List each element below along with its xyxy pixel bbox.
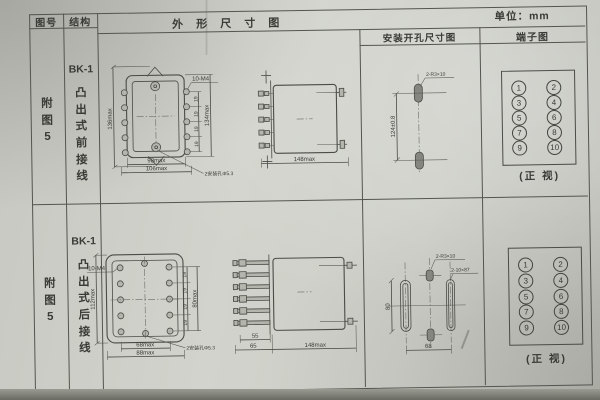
row1-terminal-diagram: 1 3 5 7 9 2 4 6 8 10 xyxy=(501,70,576,166)
terminal-4: 4 xyxy=(546,95,561,110)
svg-text:19: 19 xyxy=(183,304,189,310)
row2-dim-height-right: 80max xyxy=(192,267,199,331)
row1-dim-pitch: 19 19 19 19 xyxy=(189,92,202,152)
row2-install-hole-drawing: 80 68 2-R3×10 2-10×87 xyxy=(383,247,490,361)
row2-dim-68: 68 xyxy=(425,344,432,350)
row1-dim-slot: 2-R3×10 xyxy=(426,72,446,78)
row1-dim-148max: 148max xyxy=(294,157,315,163)
row2-dim-widths: 68max 88max xyxy=(107,341,184,360)
terminal-7: 7 xyxy=(519,305,534,320)
row2-dim-10-M4: 10-M4 xyxy=(88,266,106,272)
row1-dim-124: 124±0.8 xyxy=(391,115,397,137)
row2-dim-mount-hole: 2安装孔Φ5.3 xyxy=(186,344,215,351)
row2-dim-88max: 88max xyxy=(136,350,154,356)
row2-terminal-left-column: 1 3 5 7 9 xyxy=(518,257,534,335)
terminal-6: 6 xyxy=(553,288,568,303)
col-header-fig-no: 图号 xyxy=(29,14,63,30)
terminal-9: 9 xyxy=(519,320,534,335)
photo-bottom-shadow xyxy=(0,389,600,400)
svg-text:19: 19 xyxy=(194,126,200,132)
terminal-10: 10 xyxy=(554,320,569,335)
row1-model: BK-1 xyxy=(65,63,97,76)
row2-dim-80: 80 xyxy=(386,303,392,310)
drawing-sheet: 图号 结构 外 形 尺 寸 图 单位：mm 安装开孔尺寸图 端子图 附图5 BK… xyxy=(0,0,600,400)
terminal-5: 5 xyxy=(512,110,527,125)
row1-dim-depth: 148max xyxy=(261,156,348,167)
row1-centerlines xyxy=(136,94,175,143)
scanned-document-photo: 图号 结构 外 形 尺 寸 图 单位：mm 安装开孔尺寸图 端子图 附图5 BK… xyxy=(0,0,600,400)
row2-label-slot-long: 2-10×87 xyxy=(450,267,478,279)
row1-fig-no: 附图5 xyxy=(38,96,56,146)
svg-text:19: 19 xyxy=(193,96,199,102)
terminal-9: 9 xyxy=(512,140,527,155)
row1-dim-mount-hole: 2安装孔Φ5.3 xyxy=(205,170,234,177)
terminal-8: 8 xyxy=(554,304,569,319)
terminal-1: 1 xyxy=(511,80,526,95)
row2-fig-no: 附图5 xyxy=(41,276,59,326)
row1-terminal-caption: (正 视) xyxy=(503,168,577,184)
svg-text:19: 19 xyxy=(183,320,189,326)
row2-dim-68max: 68max xyxy=(136,342,154,348)
terminal-2: 2 xyxy=(546,80,561,95)
row2-dim-55: 55 xyxy=(252,334,259,340)
col-header-install-holes: 安装开孔尺寸图 xyxy=(359,29,479,45)
row2-dim-slot-long: 2-10×87 xyxy=(451,267,470,273)
row1-dim-hole-spacing: 124±0.8 xyxy=(390,91,400,162)
terminal-10: 10 xyxy=(547,140,562,155)
terminal-2: 2 xyxy=(553,257,568,272)
row1-terminal-left-column: 1 3 5 7 9 xyxy=(511,80,527,155)
row2-side-view-drawing: 55 65 148max xyxy=(219,245,371,359)
terminal-5: 5 xyxy=(518,289,533,304)
row1-label-mount-hole: 2安装孔Φ5.3 xyxy=(157,149,233,178)
col-header-terminal: 端子图 xyxy=(479,27,585,44)
terminal-7: 7 xyxy=(512,125,527,140)
terminal-1: 1 xyxy=(518,257,533,272)
unit-label: 单位：mm xyxy=(459,7,585,24)
row1-dim-106max: 106max xyxy=(146,166,167,172)
svg-text:19: 19 xyxy=(182,272,188,278)
row1-install-hole-drawing: 124±0.8 2-R3×10 xyxy=(384,59,478,186)
row1-dim-height-left: 136max xyxy=(107,64,152,169)
row1-dim-10-M4: 10-M4 xyxy=(192,76,210,82)
row1-dim-98max: 98max xyxy=(147,158,165,164)
row1-front-view-drawing: 136max 10-M4 19 19 19 19 134max xyxy=(106,55,258,185)
svg-text:19: 19 xyxy=(182,288,188,294)
row2-dim-horizontal: 68 xyxy=(406,344,451,355)
row1-structure: 凸出式前接线 xyxy=(72,85,91,185)
row2-terminal-right-column: 2 4 6 8 10 xyxy=(553,257,569,335)
row2-label-thread: 10-M4 xyxy=(87,266,118,272)
row1-dim-134max: 134max xyxy=(204,105,210,126)
row2-dim-148max: 148max xyxy=(305,343,326,349)
row2-dim-slot-small: 2-R3×10 xyxy=(436,254,456,260)
row1-dim-widths: 98max 106max xyxy=(121,157,191,176)
row2-dim-65: 65 xyxy=(250,344,257,350)
row1-terminal-right-column: 2 4 6 8 10 xyxy=(546,80,562,155)
svg-text:19: 19 xyxy=(194,141,200,147)
terminal-4: 4 xyxy=(553,273,568,288)
svg-text:19: 19 xyxy=(194,111,200,117)
terminal-8: 8 xyxy=(547,125,562,140)
row2-dim-112max: 112max xyxy=(90,289,96,310)
row1-label-thread: 10-M4 xyxy=(187,76,218,89)
terminal-3: 3 xyxy=(518,273,533,288)
row2-front-studs xyxy=(297,262,358,325)
row2-terminal-diagram: 1 3 5 7 9 2 4 6 8 10 xyxy=(508,247,584,346)
row2-label-mount-hole: 2安装孔Φ5.3 xyxy=(147,335,215,352)
row2-dim-80max: 80max xyxy=(192,290,198,308)
row2-terminal-caption: (正 视) xyxy=(509,351,583,367)
row2-dim-stud-lengths: 55 65 xyxy=(235,333,272,354)
row1-side-view-drawing: 148max xyxy=(256,57,353,173)
row1-side-rear-studs xyxy=(296,88,347,149)
terminal-6: 6 xyxy=(547,110,562,125)
row1-dim-136max: 136max xyxy=(108,108,114,129)
col-header-structure: 结构 xyxy=(63,13,97,29)
terminal-3: 3 xyxy=(511,95,526,110)
row1-label-slot: 2-R3×10 xyxy=(420,72,454,87)
row2-rear-studs xyxy=(233,259,270,326)
